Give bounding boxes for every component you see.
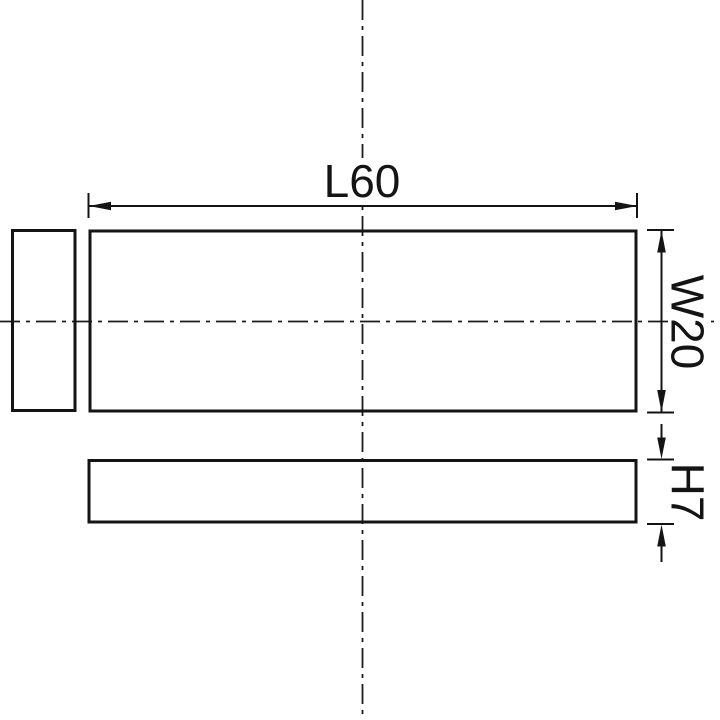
side-view-outline: [13, 231, 76, 411]
length-arrow-right-icon: [615, 202, 637, 210]
length-dimension-label: L60: [324, 155, 401, 207]
height-arrow-down-icon: [657, 438, 666, 460]
width-dimension-label: W20: [662, 275, 714, 370]
height-arrow-up-icon: [657, 525, 666, 547]
height-dimension: H7: [647, 424, 714, 562]
width-arrow-up-icon: [657, 231, 666, 253]
dimension-drawing: L60 W20 H7: [0, 0, 720, 720]
width-arrow-down-icon: [657, 390, 666, 412]
length-arrow-left-icon: [89, 202, 111, 210]
technical-drawing-canvas: L60 W20 H7: [0, 0, 720, 720]
height-dimension-label: H7: [662, 463, 714, 522]
